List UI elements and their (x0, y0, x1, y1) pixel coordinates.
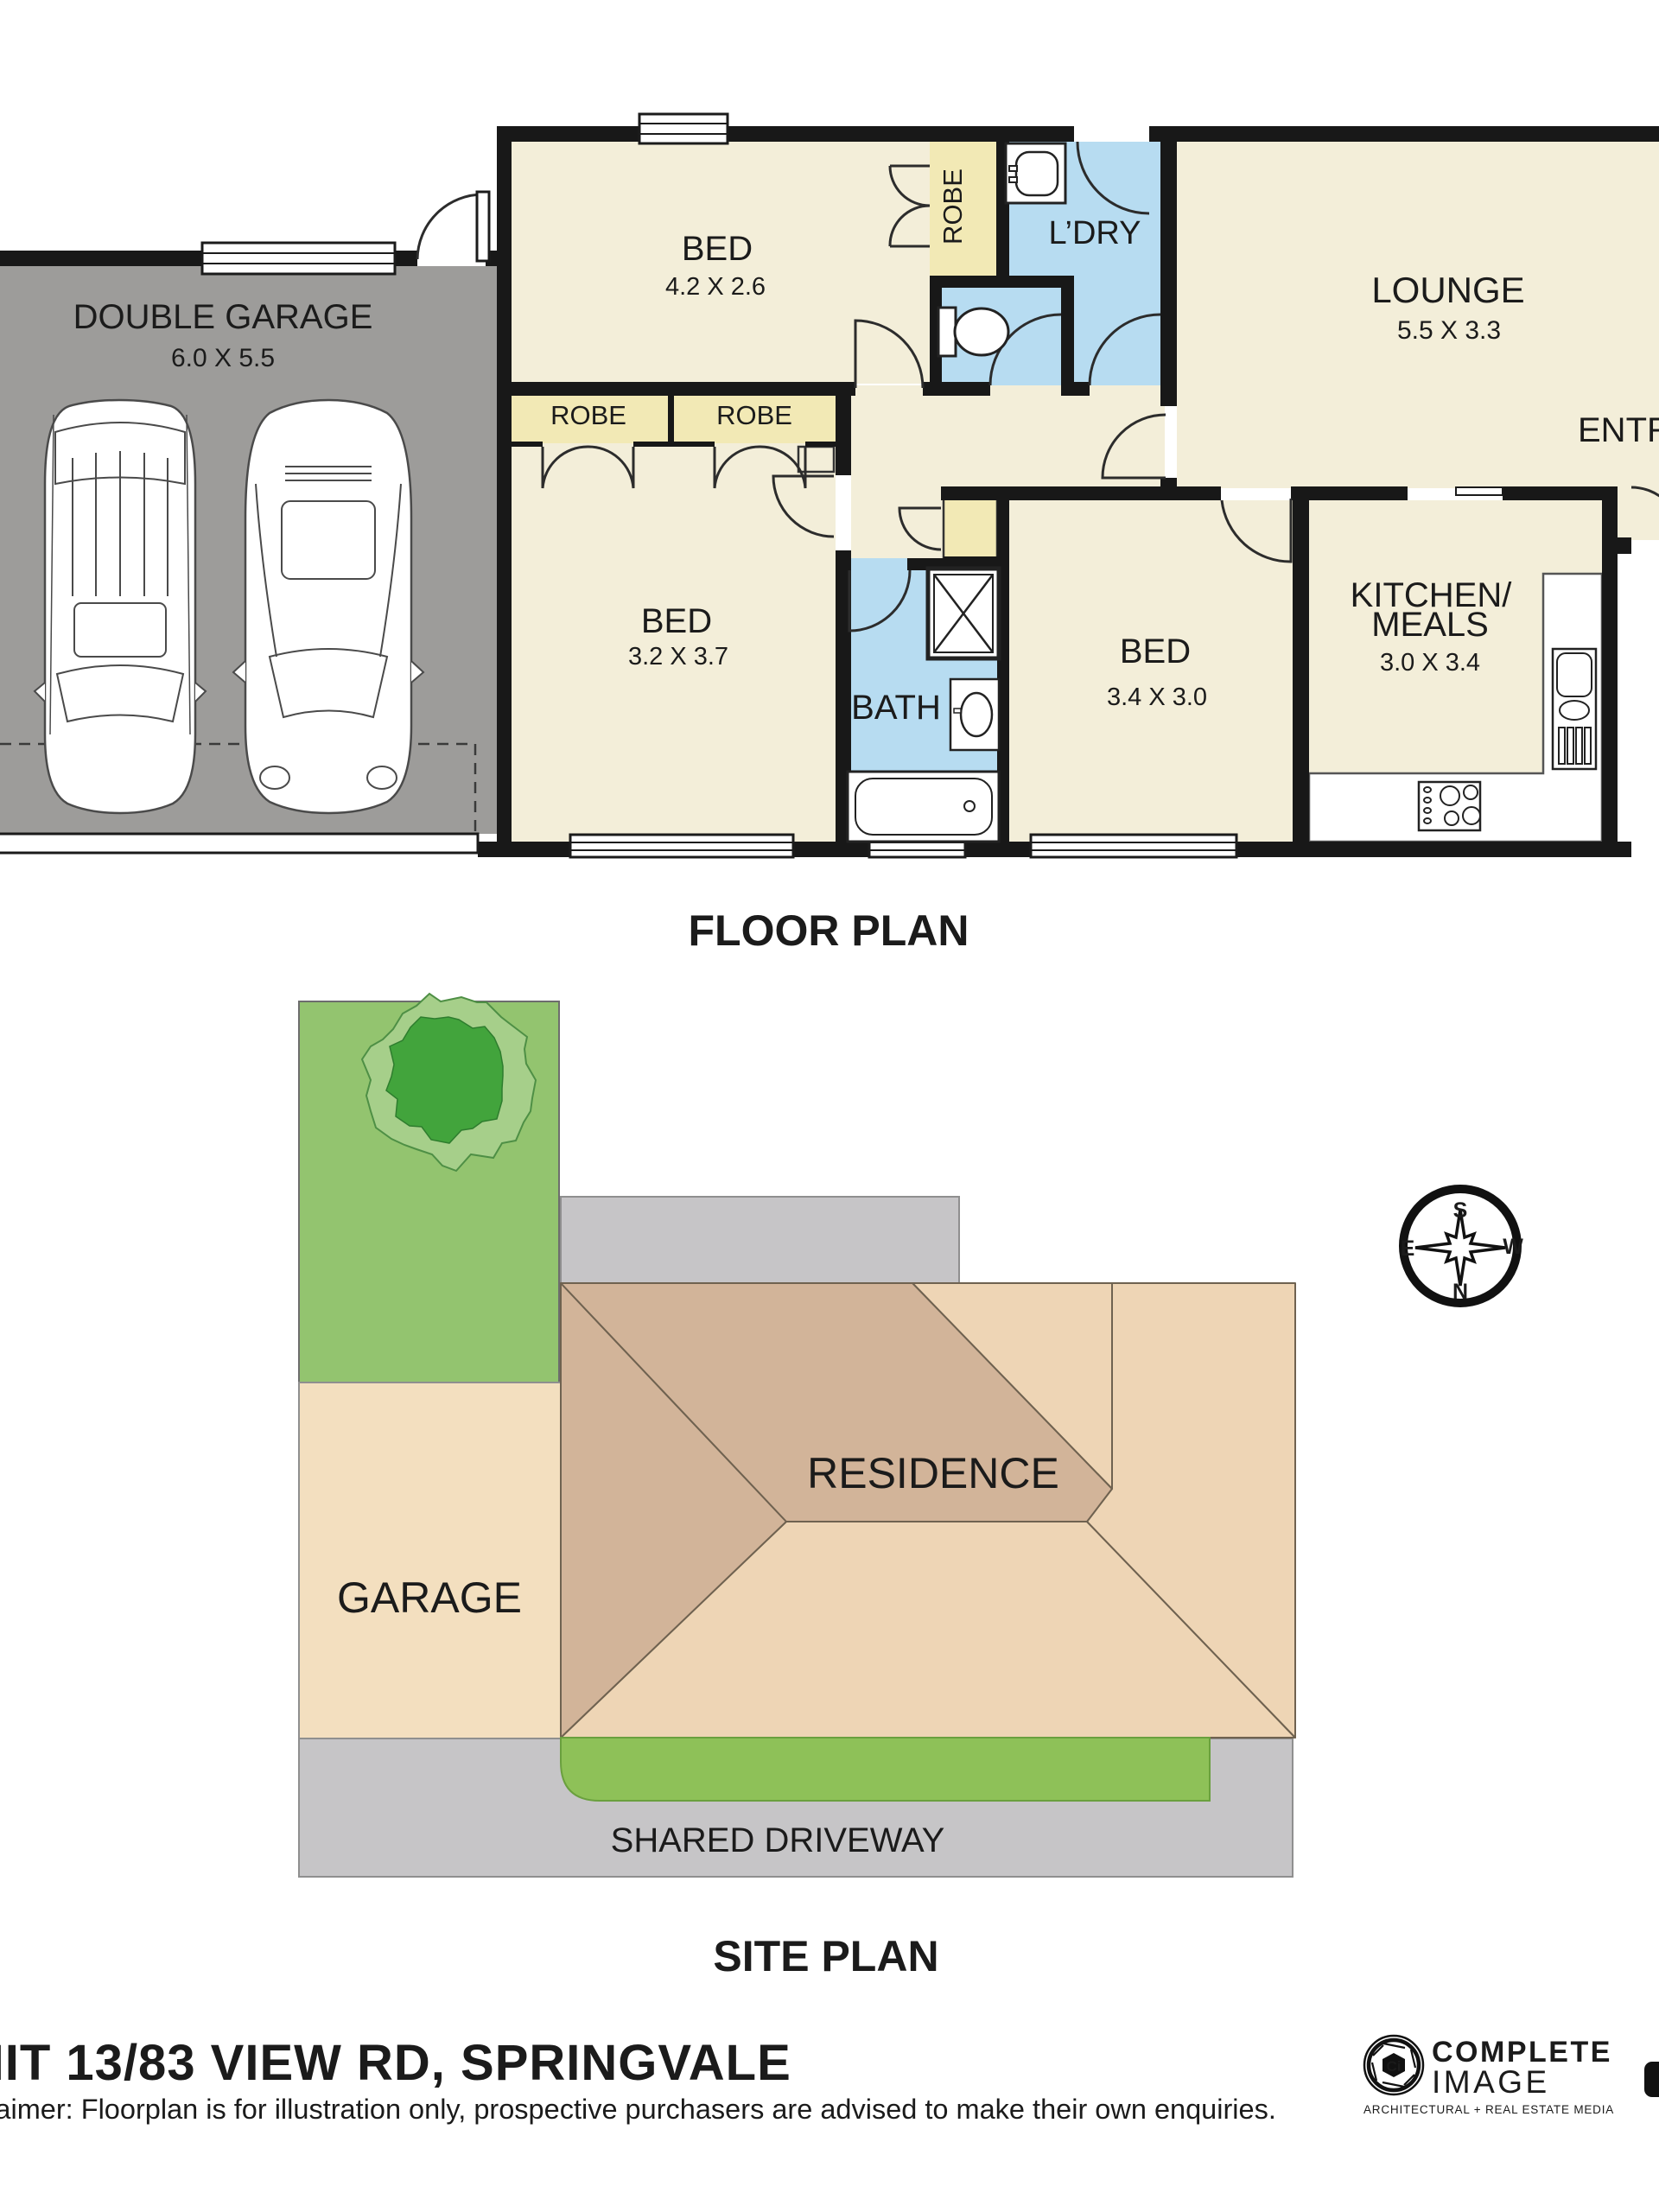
svg-text:DOUBLE GARAGE: DOUBLE GARAGE (73, 298, 373, 336)
svg-text:UNIT 13/83 VIEW RD, SPRINGVALE: UNIT 13/83 VIEW RD, SPRINGVALE (0, 2035, 791, 2091)
svg-text:IMAGE: IMAGE (1432, 2064, 1550, 2100)
svg-text:3.0 X 3.4: 3.0 X 3.4 (1380, 649, 1480, 677)
svg-text:LOUNGE: LOUNGE (1371, 270, 1524, 310)
svg-text:ROBE: ROBE (938, 168, 968, 245)
svg-text:BATH: BATH (851, 689, 941, 727)
svg-text:SITE PLAN: SITE PLAN (713, 1932, 938, 1980)
svg-text:N: N (1452, 1280, 1468, 1304)
svg-text:MEALS: MEALS (1371, 606, 1489, 644)
svg-text:E: E (1401, 1236, 1415, 1261)
svg-text:ROBE: ROBE (716, 400, 792, 430)
svg-text:SHARED DRIVEWAY: SHARED DRIVEWAY (611, 1821, 945, 1859)
svg-text:ROBE: ROBE (550, 400, 626, 430)
svg-text:ENTRY: ENTRY (1578, 411, 1659, 449)
svg-text:3.4 X 3.0: 3.4 X 3.0 (1107, 683, 1207, 711)
svg-text:BED: BED (1120, 632, 1191, 671)
svg-text:ARCHITECTURAL + REAL ESTATE ME: ARCHITECTURAL + REAL ESTATE MEDIA (1363, 2103, 1614, 2116)
svg-text:GARAGE: GARAGE (337, 1573, 522, 1622)
svg-text:L’DRY: L’DRY (1048, 215, 1141, 251)
svg-text:6.0 X 5.5: 6.0 X 5.5 (171, 344, 275, 372)
svg-text:4.2 X 2.6: 4.2 X 2.6 (665, 273, 766, 301)
svg-text:3.2 X 3.7: 3.2 X 3.7 (628, 643, 728, 671)
svg-text:RESIDENCE: RESIDENCE (807, 1449, 1059, 1497)
svg-text:W: W (1503, 1235, 1523, 1259)
svg-text:5.5 X 3.3: 5.5 X 3.3 (1397, 316, 1501, 345)
svg-text:BED: BED (641, 602, 712, 640)
svg-text:Disclaimer: Floorplan is for i: Disclaimer: Floorplan is for illustratio… (0, 2094, 1276, 2125)
svg-text:S: S (1453, 1198, 1468, 1223)
svg-text:BED: BED (682, 230, 753, 268)
svg-text:Ci: Ci (1387, 2058, 1402, 2075)
svg-text:FLOOR PLAN: FLOOR PLAN (689, 906, 969, 955)
